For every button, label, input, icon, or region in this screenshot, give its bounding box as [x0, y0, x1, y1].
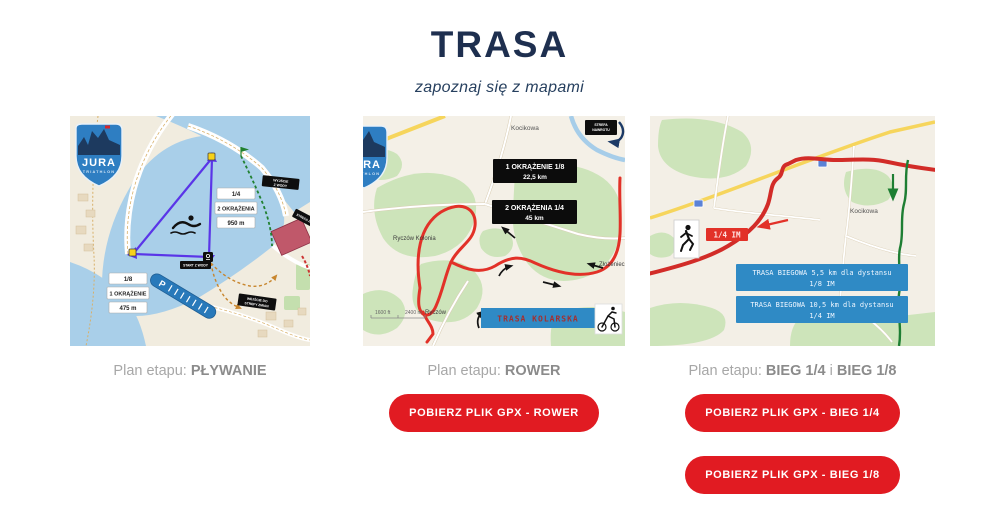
svg-text:1/4 IM: 1/4 IM: [809, 312, 834, 320]
lap1-box: 1 OKRĄŻENIE 1/8 22,5 km: [493, 159, 577, 183]
caption-stage: BIEG 1/4: [766, 363, 826, 379]
caption-stage: PŁYWANIE: [191, 363, 267, 379]
caption-bike: Plan etapu: ROWER: [363, 363, 625, 379]
cyclist-icon: [595, 304, 622, 334]
svg-text:TRASA KOLARSKA: TRASA KOLARSKA: [497, 315, 578, 324]
buoy-icon: [129, 249, 136, 256]
caption-stage-2: BIEG 1/8: [837, 363, 897, 379]
caption-stage: ROWER: [505, 363, 561, 379]
run-banner-quarter: TRASA BIEGOWA 10,5 km dla dystansu 1/4 I…: [736, 296, 908, 323]
map-swim-image: 1/4 2 OKRĄŻENIA 950 m 1/8 1 OKRĄŻENIE 47…: [70, 116, 310, 346]
place-zlozeniec: Złożeniec: [599, 262, 625, 268]
logo-subtext: TRIATHLON: [83, 170, 115, 174]
svg-text:TRASA BIEGOWA 10,5 km dla dyst: TRASA BIEGOWA 10,5 km dla dystansu: [750, 301, 893, 309]
label-start: START Z WODY: [180, 261, 211, 269]
svg-text:JURA: JURA: [363, 159, 381, 171]
distance-badge: 1/4 IM: [706, 228, 748, 241]
caption-swim: Plan etapu: PŁYWANIE: [70, 363, 310, 379]
caption-run: Plan etapu: BIEG 1/4 i BIEG 1/8: [650, 363, 935, 379]
quarter-laps: 2 OKRĄŻENIA: [217, 206, 254, 213]
start-marker-icon: [203, 252, 213, 262]
svg-text:1/4 IM: 1/4 IM: [713, 231, 741, 240]
place-kocikowa: Kocikowa: [511, 125, 539, 132]
bike-route-banner: TRASA KOLARSKA: [481, 308, 595, 328]
logo-text: JURA: [82, 157, 116, 169]
place-ryczow-kolonia: Ryczów Kolonia: [393, 236, 436, 242]
download-gpx-bike-button[interactable]: POBIERZ PLIK GPX - ROWER: [389, 394, 599, 432]
quarter-distance: 950 m: [227, 221, 244, 227]
svg-text:1/8 IM: 1/8 IM: [809, 280, 834, 288]
svg-text:2400 m: 2400 m: [405, 310, 422, 316]
caption-prefix: Plan etapu:: [428, 363, 505, 379]
run-banner-eighth: TRASA BIEGOWA 5,5 km dla dystansu 1/8 IM: [736, 264, 908, 291]
caption-prefix: Plan etapu:: [689, 363, 766, 379]
download-gpx-run-eighth-button[interactable]: POBIERZ PLIK GPX - BIEG 1/8: [685, 456, 900, 494]
maps-row: 1/4 2 OKRĄŻENIA 950 m 1/8 1 OKRĄŻENIE 47…: [0, 116, 999, 494]
download-gpx-run-quarter-button[interactable]: POBIERZ PLIK GPX - BIEG 1/4: [685, 394, 900, 432]
column-run: Kocikowa 1/4 IM TRASA BIEGOWA 5,5 km dla…: [650, 116, 935, 494]
map-run-image: Kocikowa 1/4 IM TRASA BIEGOWA 5,5 km dla…: [650, 116, 935, 346]
page-subtitle: zapoznaj się z mapami: [0, 79, 999, 97]
caption-prefix: Plan etapu:: [113, 363, 190, 379]
svg-text:TRASA BIEGOWA 5,5 km dla dysta: TRASA BIEGOWA 5,5 km dla dystansu: [752, 269, 891, 277]
eighth-distance: 475 m: [119, 306, 136, 312]
svg-text:START Z WODY: START Z WODY: [183, 264, 209, 268]
place-kocikowa: Kocikowa: [850, 208, 878, 215]
svg-text:22,5 km: 22,5 km: [523, 174, 547, 181]
svg-text:1600 ft: 1600 ft: [375, 310, 391, 316]
svg-text:TRIATHLON: TRIATHLON: [363, 172, 380, 176]
quarter-fraction: 1/4: [232, 192, 241, 198]
info-box-quarter: 1/4 2 OKRĄŻENIA 950 m: [215, 188, 257, 228]
page-title: TRASA: [0, 24, 999, 66]
svg-text:STREFA: STREFA: [594, 123, 608, 127]
place-ryczow: Ryczów: [425, 310, 447, 316]
svg-text:1 OKRĄŻENIE 1/8: 1 OKRĄŻENIE 1/8: [506, 163, 565, 171]
svg-text:45 km: 45 km: [525, 215, 544, 222]
section-header: TRASA zapoznaj się z mapami: [0, 0, 999, 97]
column-bike: JURA TRIATHLON Kocikowa STREFA NAWROTU 1…: [363, 116, 625, 432]
lap2-box: 2 OKRĄŻENIA 1/4 45 km: [492, 200, 577, 224]
eighth-fraction: 1/8: [124, 277, 133, 283]
runner-icon: [674, 220, 699, 258]
svg-text:2 OKRĄŻENIA 1/4: 2 OKRĄŻENIA 1/4: [505, 204, 564, 212]
logo-flag-icon: [105, 126, 110, 129]
info-box-eighth: 1/8 1 OKRĄŻENIE 475 m: [107, 273, 149, 313]
buoy-icon: [208, 153, 215, 160]
map-bike-image: JURA TRIATHLON Kocikowa STREFA NAWROTU 1…: [363, 116, 625, 346]
svg-text:NAWROTU: NAWROTU: [592, 128, 610, 132]
column-swim: 1/4 2 OKRĄŻENIA 950 m 1/8 1 OKRĄŻENIE 47…: [70, 116, 310, 379]
eighth-laps: 1 OKRĄŻENIE: [110, 291, 147, 298]
